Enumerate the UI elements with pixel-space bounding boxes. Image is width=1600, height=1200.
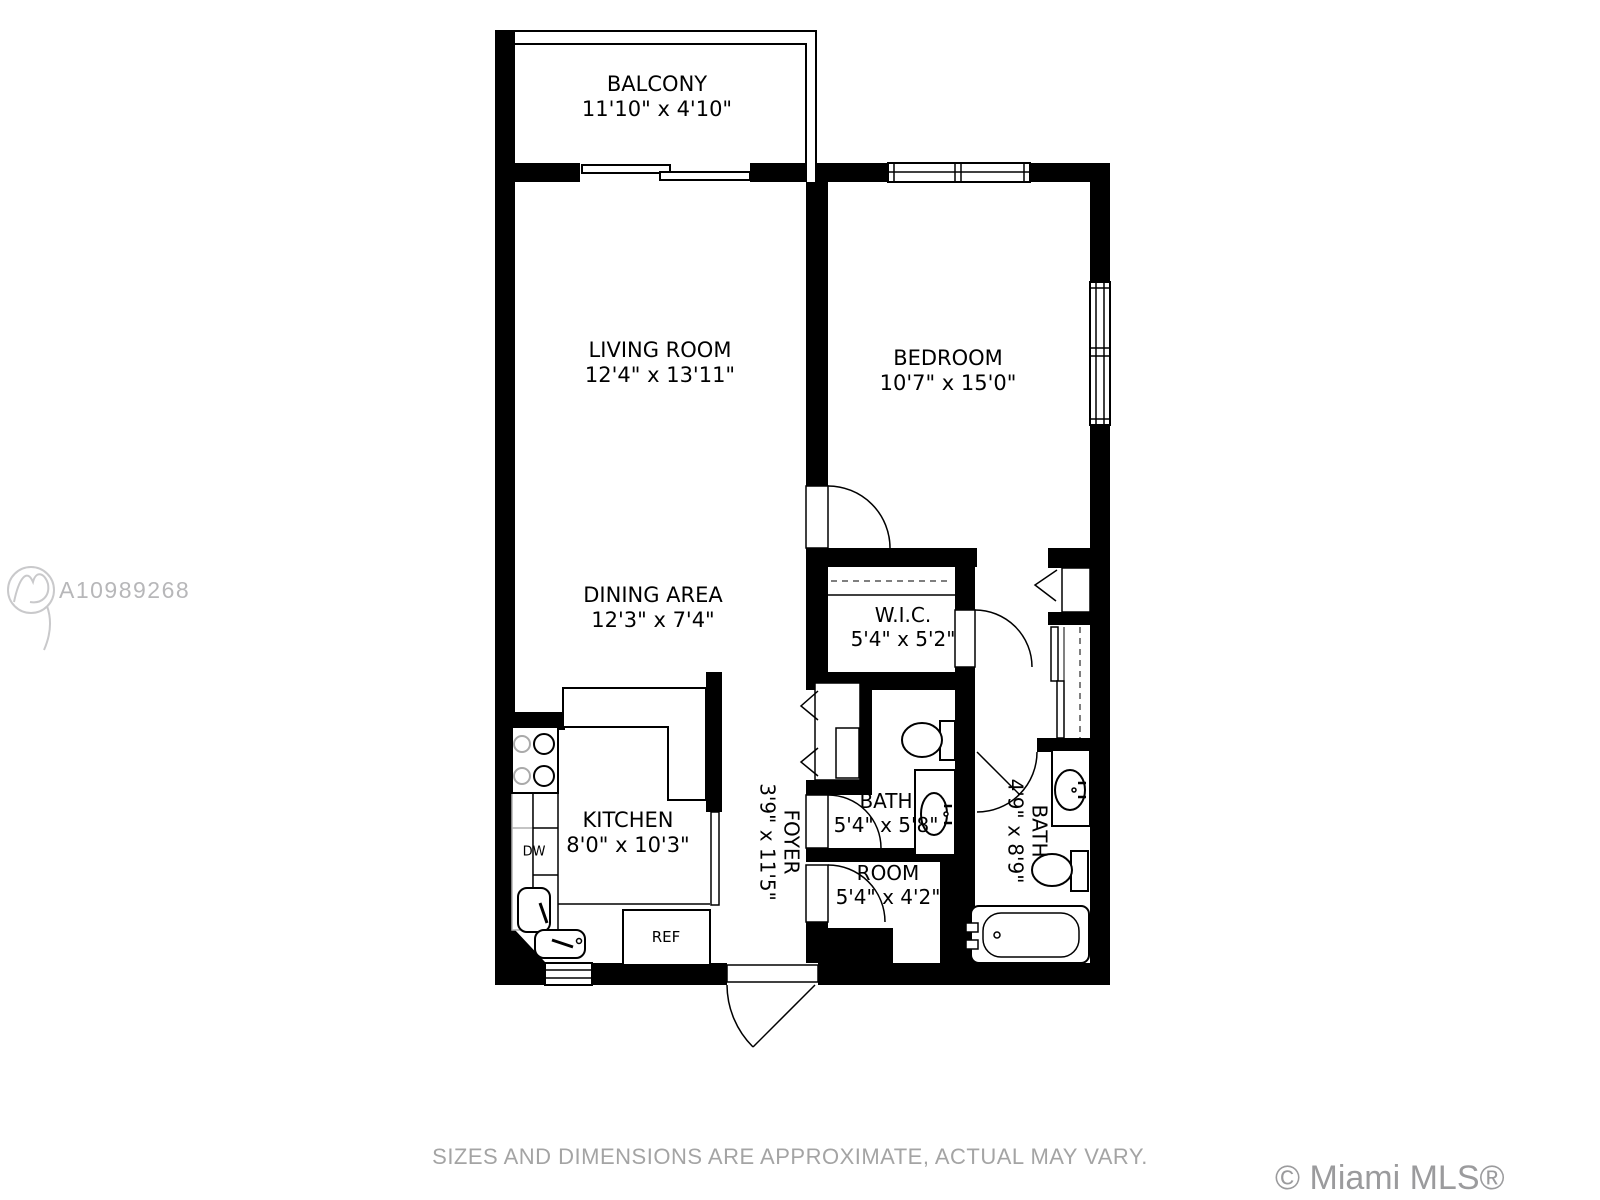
window-bedroom-top: [888, 163, 1030, 182]
room-dims: 4'9" x 8'9": [1003, 779, 1027, 884]
room-dims: 5'4" x 5'2": [851, 628, 956, 652]
floor-plan-drawing: [0, 0, 1600, 1200]
room-label-bedroom: BEDROOM 10'7" x 15'0": [880, 346, 1017, 396]
door-bedroom: [806, 486, 890, 548]
mls-listing-id-watermark: A10989268: [59, 577, 190, 604]
window-kitchen: [545, 963, 592, 985]
room-label-bath-2: BATH 4'9" x 8'9": [1003, 779, 1050, 884]
room-name: W.I.C.: [851, 604, 956, 628]
door-wic: [955, 610, 1032, 667]
bathtub-fixture: [966, 906, 1089, 963]
bedroom-closet: [1051, 627, 1080, 738]
room-name: BATH: [834, 790, 939, 814]
balcony-sliding-door: [580, 163, 750, 182]
room-dims: 5'4" x 5'8": [834, 814, 939, 838]
room-label-kitchen: KITCHEN 8'0" x 10'3": [566, 808, 689, 858]
toilet-fixture-bath-1: [902, 721, 955, 760]
window-bedroom-side: [1090, 282, 1110, 425]
room-name: BALCONY: [582, 72, 732, 97]
wic-closet-rod: [828, 581, 955, 595]
room-name: BATH: [1027, 779, 1051, 884]
room-label-living-room: LIVING ROOM 12'4" x 13'11": [585, 338, 735, 388]
room-name: KITCHEN: [566, 808, 689, 833]
room-name: LIVING ROOM: [585, 338, 735, 363]
door-bedroom-hall: [1035, 568, 1090, 612]
room-dims: 8'0" x 10'3": [566, 833, 689, 858]
sink-vanity-bath-2: [1052, 750, 1090, 826]
room-label-utility-room: ROOM 5'4" x 4'2": [836, 862, 941, 909]
room-label-wic: W.I.C. 5'4" x 5'2": [851, 604, 956, 651]
dishwasher-label: DW: [523, 845, 546, 860]
floor-plan-page: BALCONY 11'10" x 4'10" LIVING ROOM 12'4"…: [0, 0, 1600, 1200]
foyer-closet: [801, 683, 860, 780]
room-label-bath-1: BATH 5'4" x 5'8": [834, 790, 939, 837]
room-dims: 11'10" x 4'10": [582, 97, 732, 122]
room-dims: 3'9" x 11'5": [755, 783, 779, 901]
stove-fixture: [512, 727, 558, 793]
size-disclaimer-text: SIZES AND DIMENSIONS ARE APPROXIMATE, AC…: [432, 1144, 1148, 1170]
room-name: BEDROOM: [880, 346, 1017, 371]
room-label-dining-area: DINING AREA 12'3" x 7'4": [583, 583, 723, 633]
entry-door: [727, 965, 818, 1047]
room-name: DINING AREA: [583, 583, 723, 608]
room-name: ROOM: [836, 862, 941, 886]
room-dims: 5'4" x 4'2": [836, 886, 941, 910]
room-label-balcony: BALCONY 11'10" x 4'10": [582, 72, 732, 122]
room-label-foyer: FOYER 3'9" x 11'5": [755, 783, 802, 901]
room-dims: 12'3" x 7'4": [583, 608, 723, 633]
refrigerator-label: REF: [652, 928, 681, 946]
room-dims: 10'7" x 15'0": [880, 371, 1017, 396]
mls-watermark-logo: [8, 567, 54, 650]
mls-copyright-text: © Miami MLS® 01/2021: [1275, 1159, 1600, 1200]
room-name: FOYER: [779, 783, 803, 901]
room-dims: 12'4" x 13'11": [585, 363, 735, 388]
